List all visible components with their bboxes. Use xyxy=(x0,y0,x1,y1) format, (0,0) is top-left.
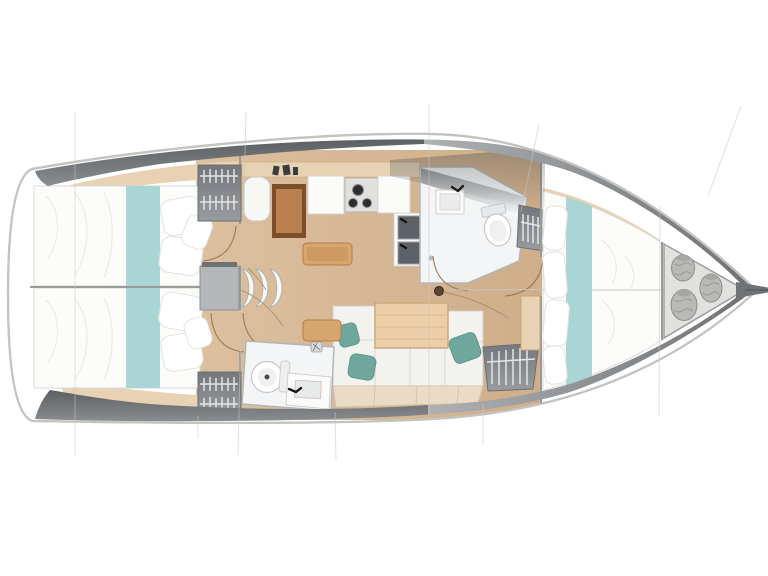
nav-seat xyxy=(244,177,270,221)
aft-cabin-starboard xyxy=(34,288,214,388)
salon-table xyxy=(375,303,448,348)
fender xyxy=(672,255,695,281)
teal-runner-starboard xyxy=(126,288,160,388)
pillow xyxy=(542,251,568,299)
galley-sideboard-top xyxy=(307,247,348,261)
toilet-aft xyxy=(252,361,291,393)
companionway-platform xyxy=(200,266,239,310)
boat-floorplan-canvas xyxy=(0,0,768,576)
pillow xyxy=(542,345,568,385)
fender xyxy=(700,274,722,302)
pillow xyxy=(542,205,568,251)
vent-icon xyxy=(311,342,322,352)
teal-runner-forward xyxy=(566,197,592,389)
galley-counter-left xyxy=(308,176,344,214)
teal-runner-port xyxy=(126,186,160,286)
chart-table-top xyxy=(276,189,302,233)
forward-cabinet xyxy=(521,296,540,350)
galley-counter-right xyxy=(378,176,410,213)
hanging-locker-port-aft xyxy=(198,165,241,221)
head-aft xyxy=(242,341,334,411)
settee-arm xyxy=(303,320,341,341)
fender xyxy=(671,290,697,321)
pillow xyxy=(542,299,570,347)
head-forward-basin xyxy=(440,194,460,210)
deck-plan-svg xyxy=(0,0,768,576)
teal-cushion xyxy=(347,353,377,381)
aft-cabin-port xyxy=(34,186,215,286)
mast-foot xyxy=(435,287,444,296)
sliding-hatch xyxy=(202,262,237,267)
hull-interior xyxy=(30,139,752,421)
